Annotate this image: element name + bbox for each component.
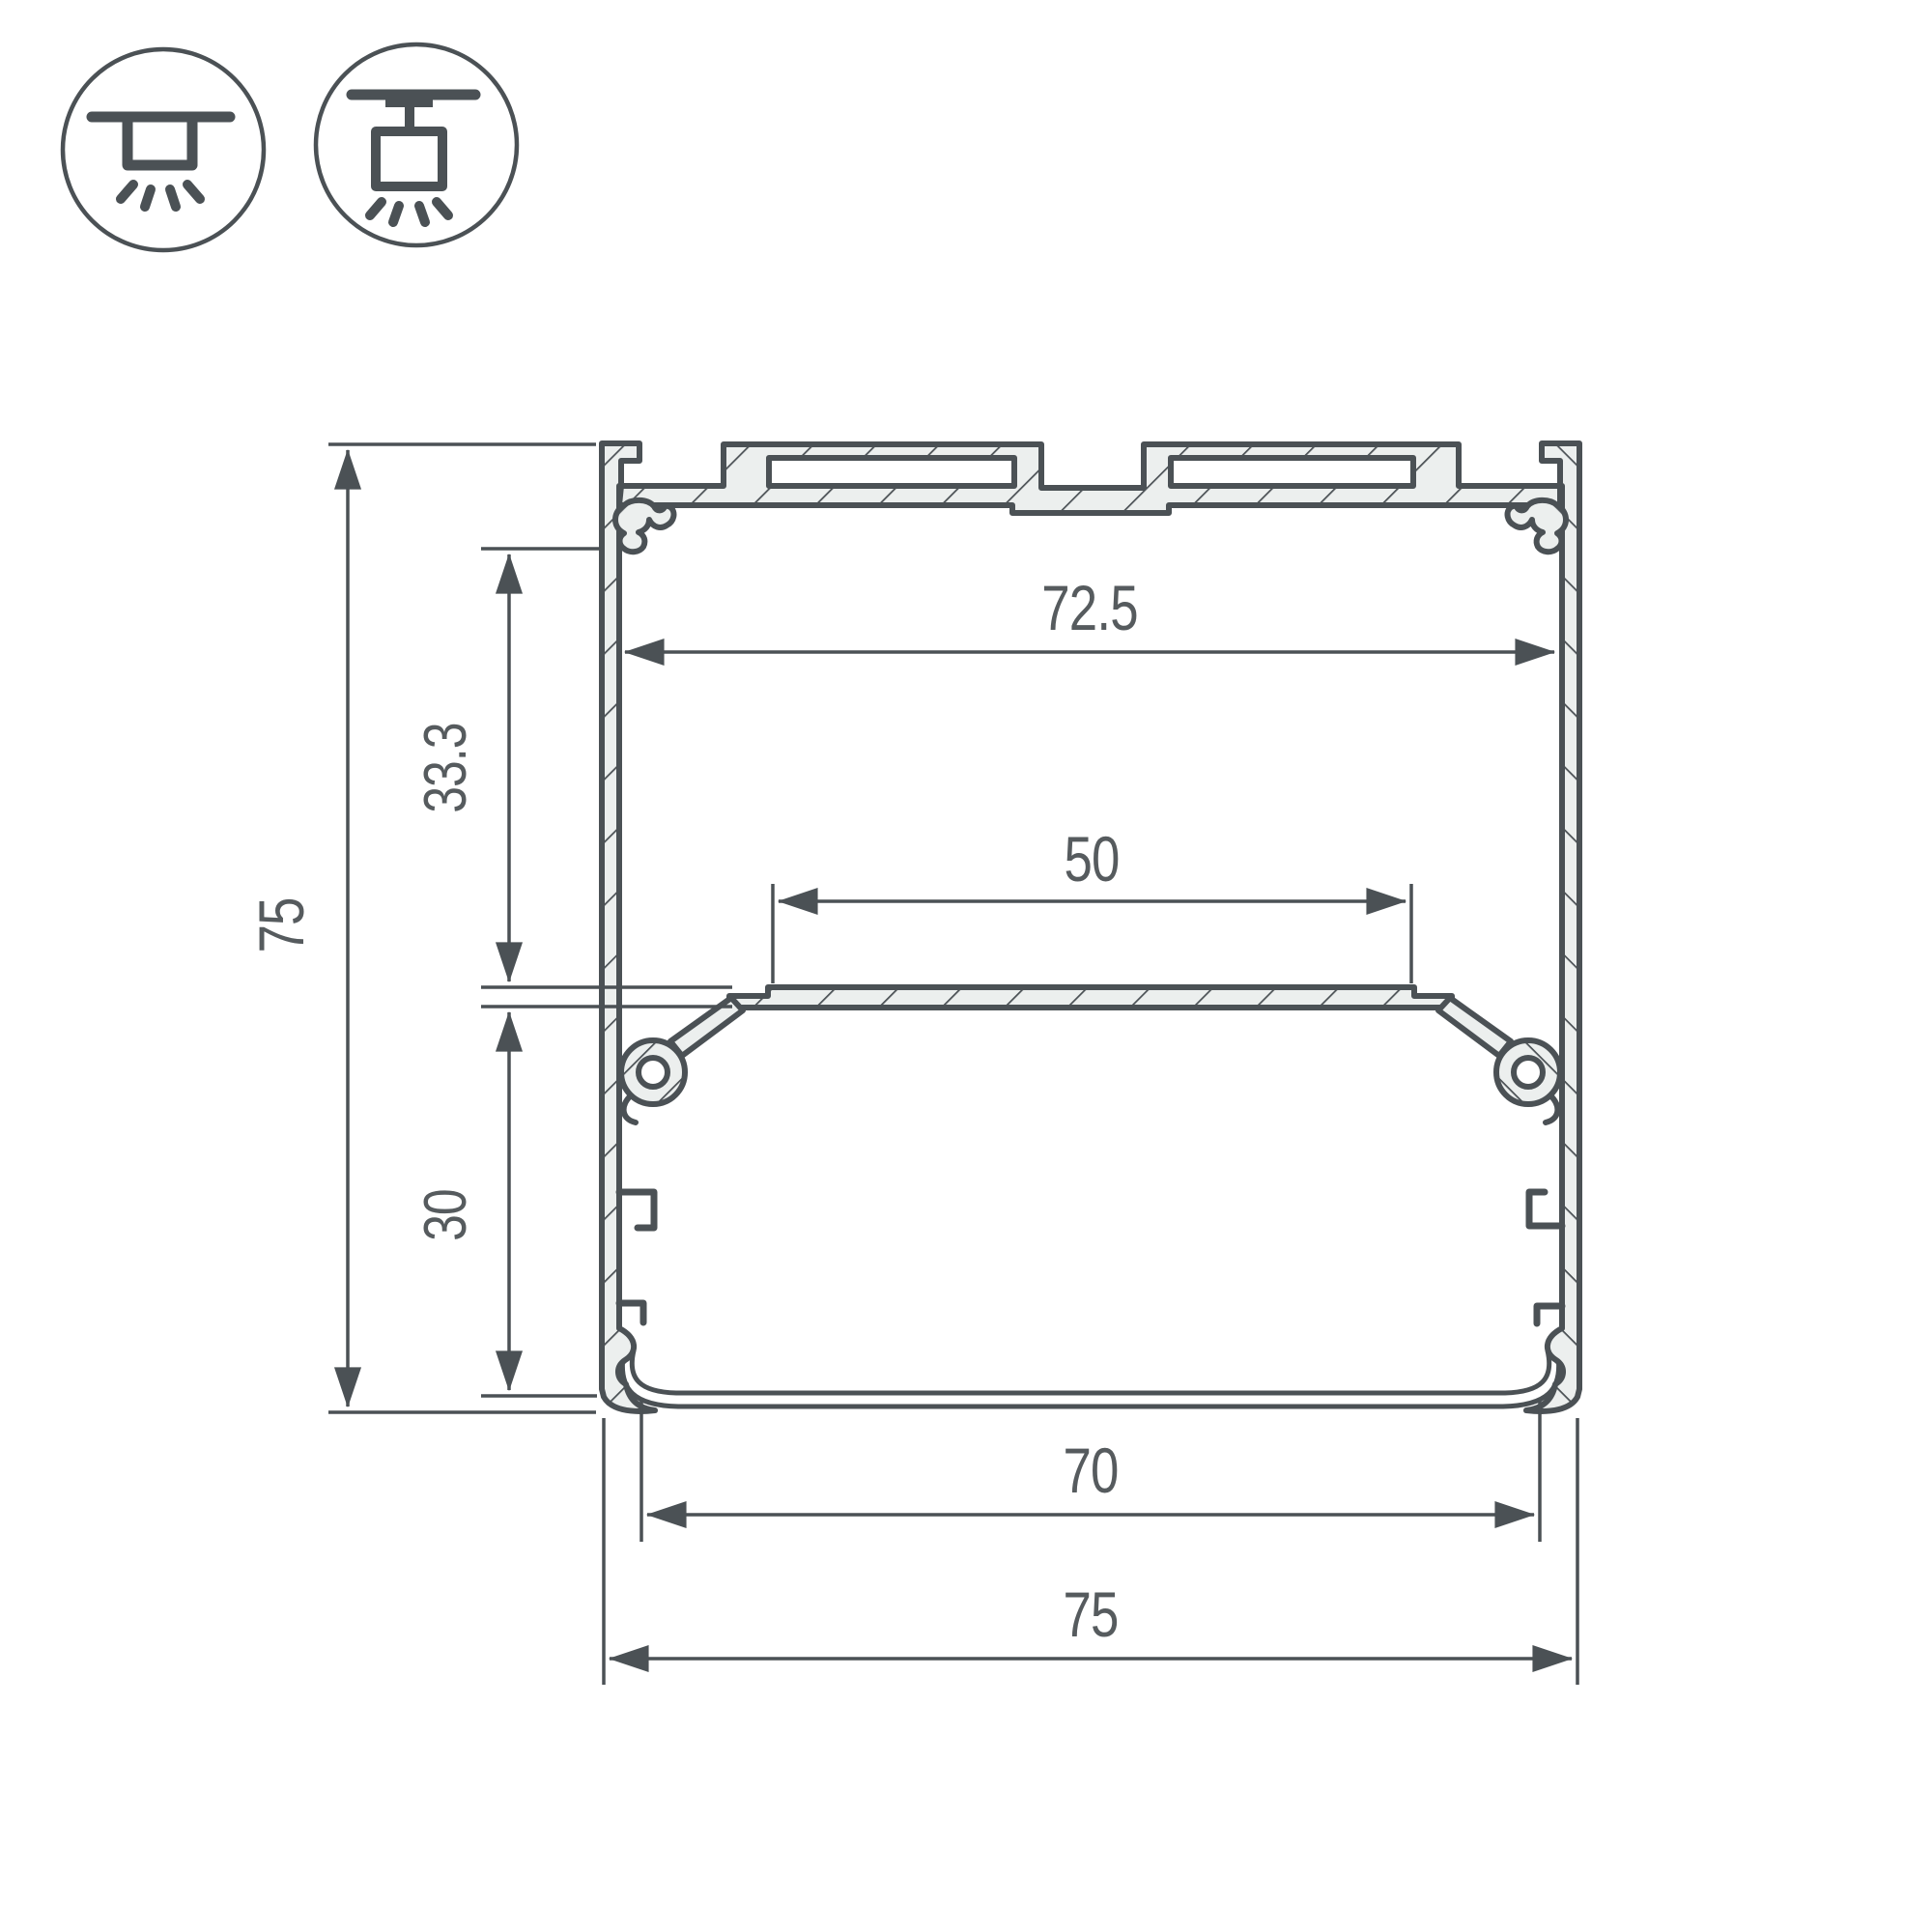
profile-drawing: 75 33.3 30 72.5 50 70 75 <box>0 0 1932 1932</box>
label-bottom-opening: 70 <box>1063 1435 1118 1506</box>
mount-icons <box>63 44 517 250</box>
shelf-brace-and-boss <box>621 998 743 1122</box>
label-overall-width: 75 <box>1063 1578 1118 1650</box>
suspended-pendant-mount-icon <box>316 44 517 245</box>
led-shelf <box>729 987 1452 1008</box>
label-overall-height: 75 <box>245 897 317 952</box>
right-side-wall <box>1526 443 1579 1411</box>
right-clip-upper <box>1529 1192 1562 1226</box>
shelf-brace-and-boss-right <box>1438 998 1560 1122</box>
technical-drawing-page: 75 33.3 30 72.5 50 70 75 <box>0 0 1932 1932</box>
left-clip-upper <box>619 1192 654 1228</box>
label-inner-width: 72.5 <box>1041 572 1138 643</box>
wall-clips <box>619 1192 1562 1323</box>
dimension-lines <box>328 444 1577 1685</box>
light-rays <box>370 202 448 222</box>
surface-ceiling-mount-icon <box>63 49 264 250</box>
light-rays <box>121 185 200 207</box>
label-upper-offset: 33.3 <box>412 723 479 812</box>
label-lower-offset: 30 <box>412 1189 479 1241</box>
top-screw-boss-right <box>1508 500 1566 552</box>
right-clip-lower <box>1537 1306 1562 1323</box>
top-screw-boss <box>615 500 673 552</box>
top-wall-assembly <box>619 444 1560 513</box>
left-side-wall <box>602 443 655 1411</box>
diffuser-plate <box>622 1350 1558 1406</box>
left-clip-lower <box>619 1303 643 1322</box>
label-shelf-width: 50 <box>1064 823 1119 895</box>
dimension-labels: 75 33.3 30 72.5 50 70 75 <box>245 572 1137 1650</box>
